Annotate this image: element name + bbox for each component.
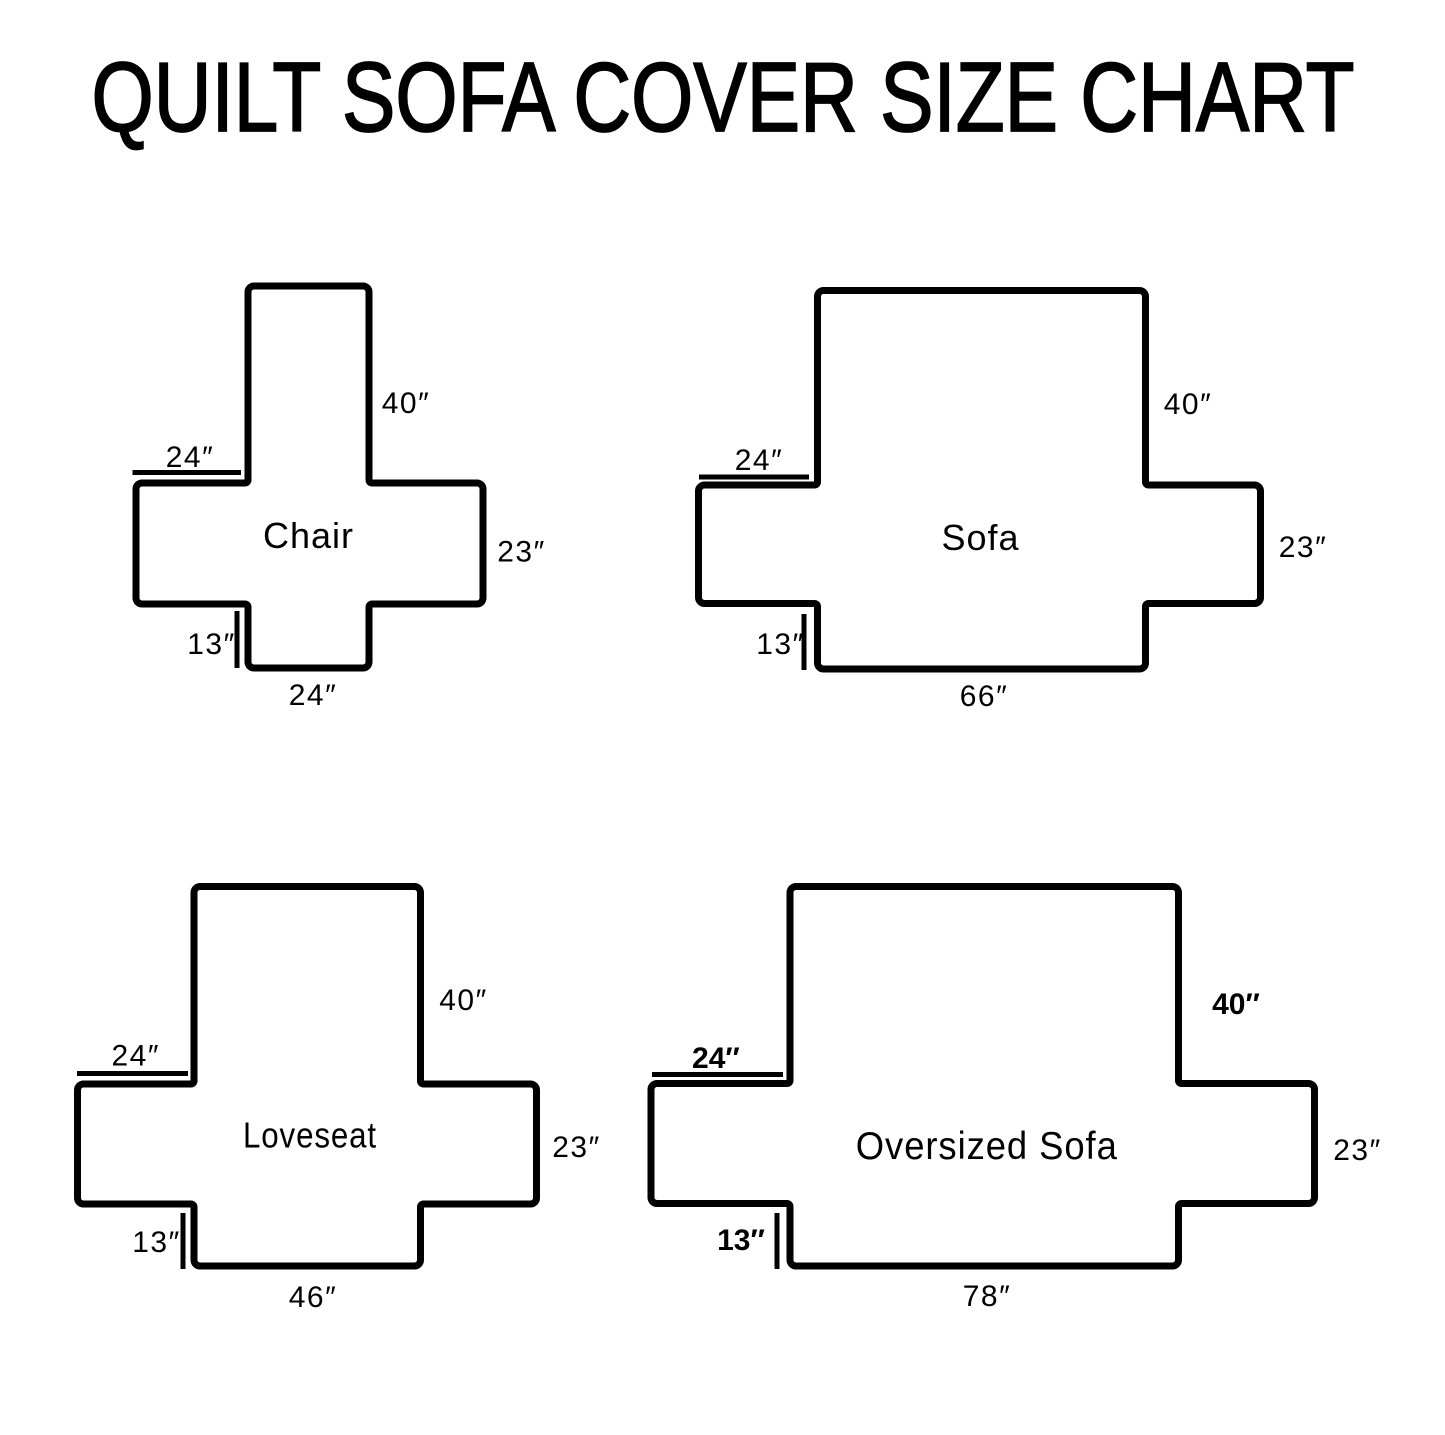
svg-text:40″: 40″ bbox=[1212, 988, 1260, 1021]
svg-text:Sofa: Sofa bbox=[941, 517, 1019, 558]
svg-text:Chair: Chair bbox=[263, 515, 354, 556]
svg-text:24″: 24″ bbox=[166, 441, 215, 474]
svg-text:13″: 13″ bbox=[756, 628, 805, 661]
svg-text:13″: 13″ bbox=[132, 1226, 181, 1259]
svg-text:Loveseat: Loveseat bbox=[243, 1115, 377, 1156]
svg-text:23″: 23″ bbox=[1333, 1134, 1382, 1167]
svg-text:23″: 23″ bbox=[552, 1131, 601, 1164]
svg-text:24″: 24″ bbox=[735, 444, 784, 477]
svg-text:46″: 46″ bbox=[289, 1281, 338, 1314]
svg-text:13″: 13″ bbox=[187, 628, 236, 661]
svg-text:Oversized Sofa: Oversized Sofa bbox=[856, 1125, 1118, 1168]
svg-text:QUILT SOFA COVER SIZE CHART: QUILT SOFA COVER SIZE CHART bbox=[92, 42, 1355, 152]
svg-text:23″: 23″ bbox=[497, 536, 546, 569]
svg-text:13″: 13″ bbox=[717, 1224, 765, 1257]
svg-text:40″: 40″ bbox=[439, 984, 488, 1017]
svg-text:40″: 40″ bbox=[1164, 388, 1213, 421]
svg-text:24″: 24″ bbox=[289, 679, 338, 712]
svg-text:24″: 24″ bbox=[692, 1042, 740, 1075]
svg-text:40″: 40″ bbox=[382, 387, 431, 420]
svg-text:24″: 24″ bbox=[112, 1040, 161, 1073]
svg-text:78″: 78″ bbox=[963, 1280, 1012, 1313]
svg-text:23″: 23″ bbox=[1279, 531, 1328, 564]
svg-text:66″: 66″ bbox=[960, 680, 1009, 713]
